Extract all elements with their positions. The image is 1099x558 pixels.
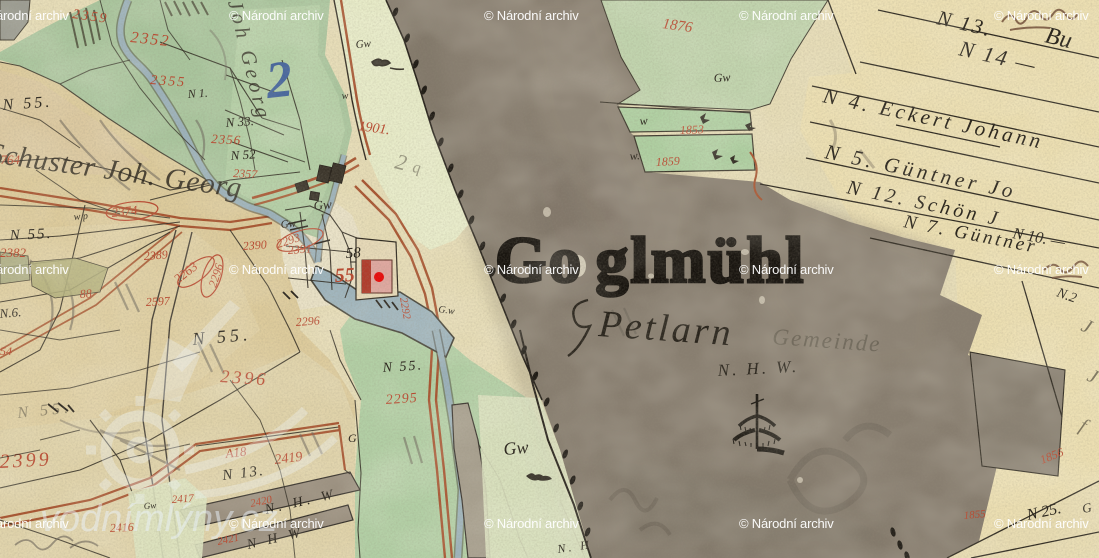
svg-text:© Národní archiv: © Národní archiv xyxy=(0,262,69,277)
svg-text:© Národní archiv: © Národní archiv xyxy=(484,262,579,277)
svg-text:© Národní archiv: © Národní archiv xyxy=(484,516,579,531)
svg-text:© Národní archiv: © Národní archiv xyxy=(229,516,324,531)
svg-text:© Národní archiv: © Národní archiv xyxy=(994,8,1089,23)
svg-text:© Národní archiv: © Národní archiv xyxy=(994,262,1089,277)
svg-text:© Národní archiv: © Národní archiv xyxy=(994,516,1089,531)
svg-text:© Národní archiv: © Národní archiv xyxy=(739,262,834,277)
svg-text:© Národní archiv: © Národní archiv xyxy=(739,516,834,531)
svg-text:© Národní archiv: © Národní archiv xyxy=(0,516,69,531)
svg-text:© Národní archiv: © Národní archiv xyxy=(229,262,324,277)
svg-text:© Národní archiv: © Národní archiv xyxy=(0,8,69,23)
svg-text:© Národní archiv: © Národní archiv xyxy=(739,8,834,23)
svg-text:© Národní archiv: © Národní archiv xyxy=(484,8,579,23)
svg-text:© Národní archiv: © Národní archiv xyxy=(229,8,324,23)
